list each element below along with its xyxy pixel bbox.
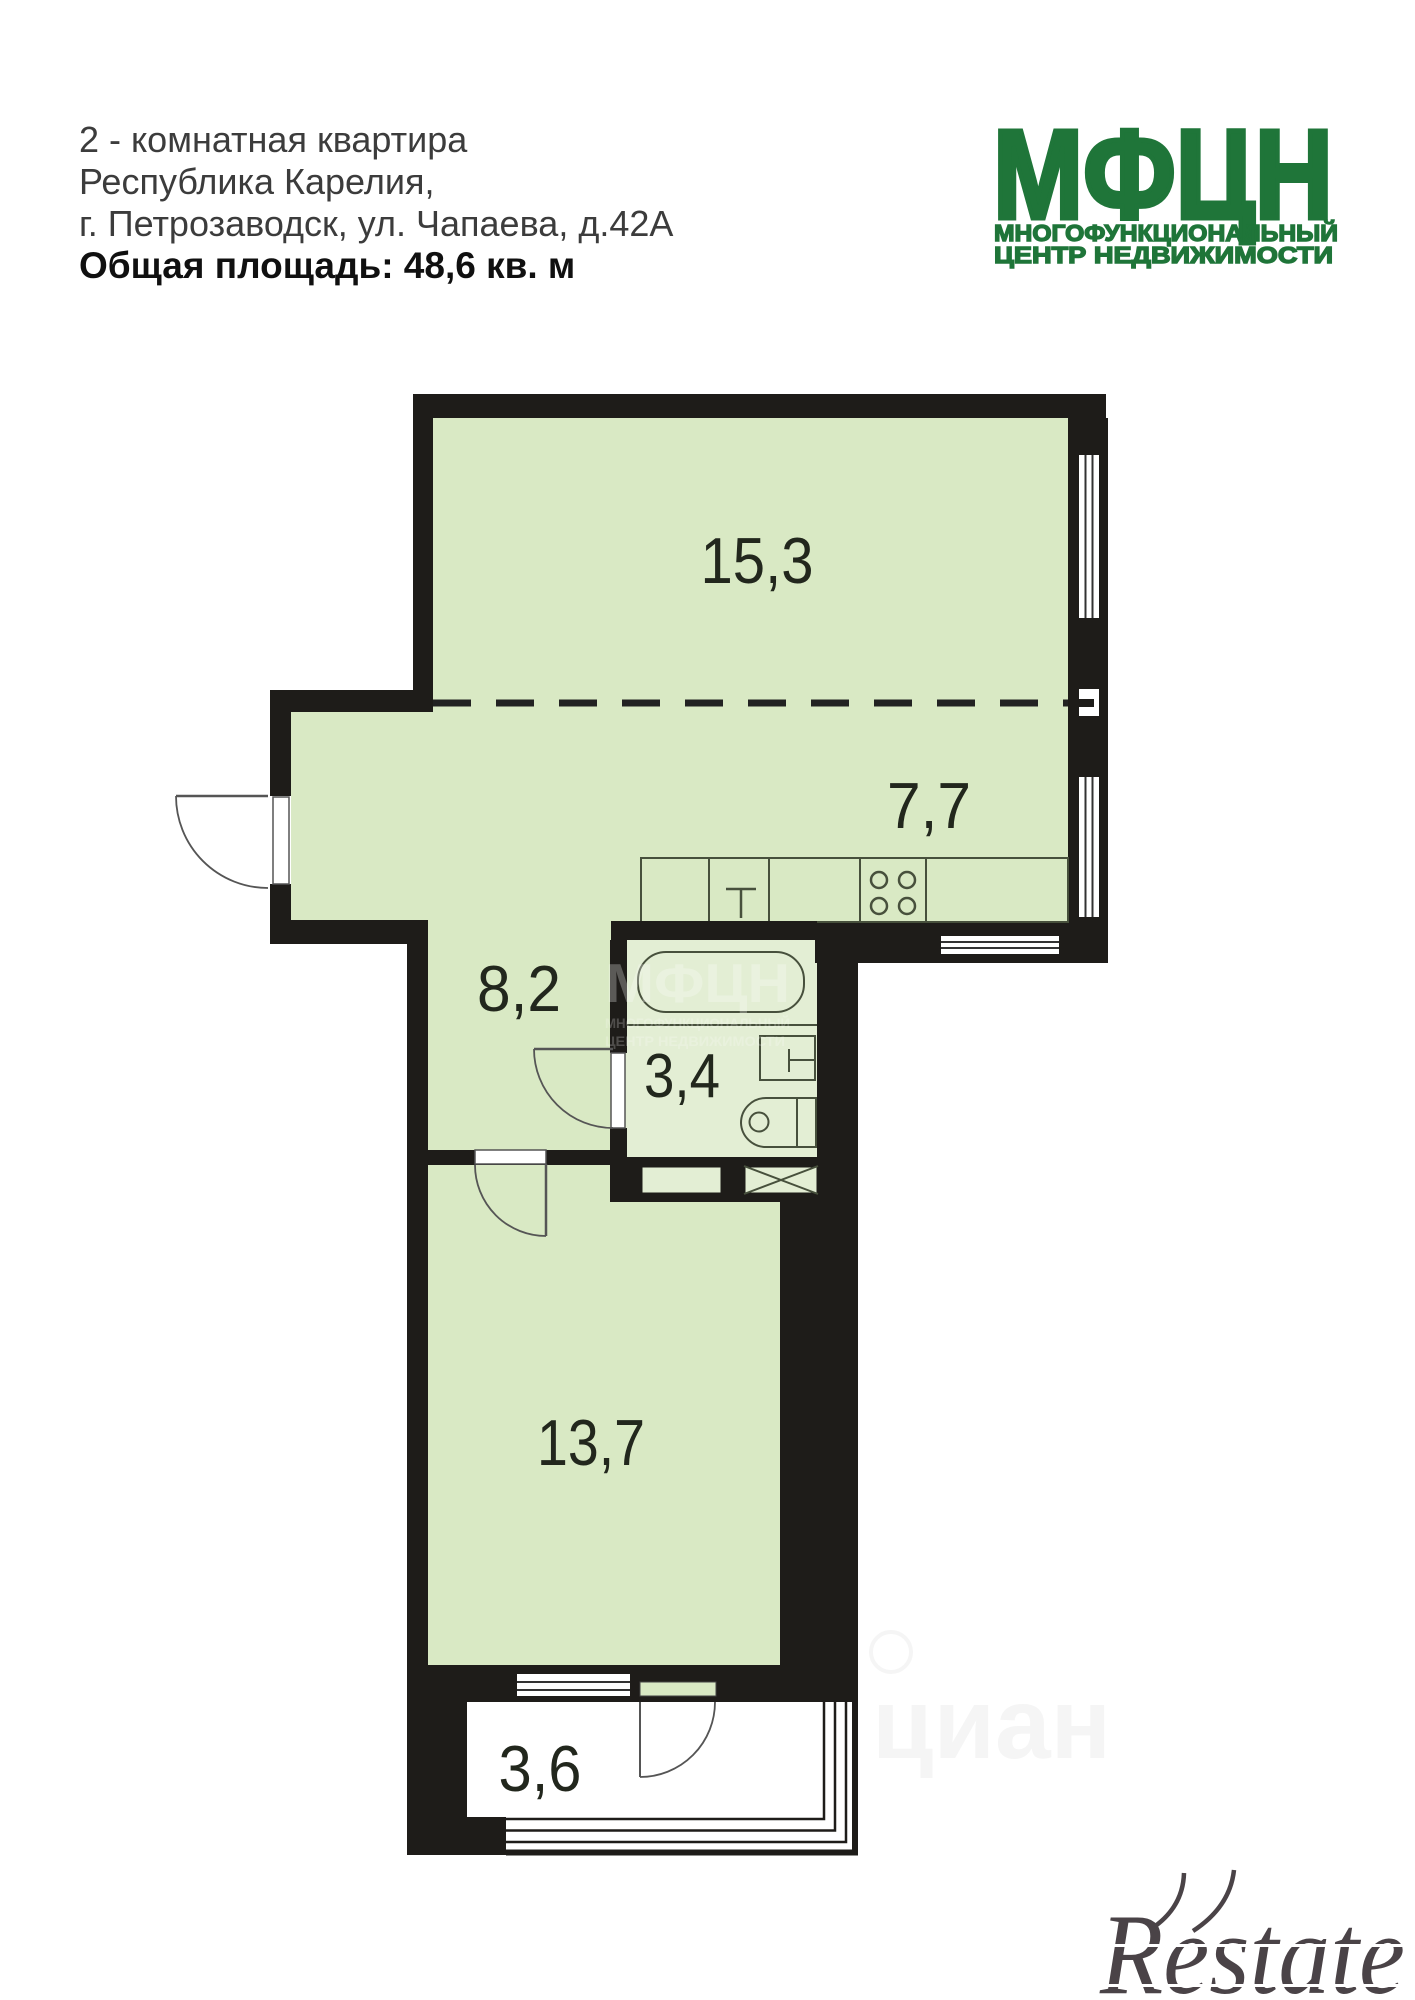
svg-text:циан: циан xyxy=(872,1668,1111,1780)
svg-text:8,2: 8,2 xyxy=(477,952,561,1025)
svg-text:Республика Карелия,: Республика Карелия, xyxy=(79,161,434,202)
svg-text:МФЦН: МФЦН xyxy=(605,952,790,1014)
svg-text:ЦЕНТР НЕДВИЖИМОСТИ: ЦЕНТР НЕДВИЖИМОСТИ xyxy=(994,242,1333,268)
svg-text:2 - комнатная квартира: 2 - комнатная квартира xyxy=(79,119,468,160)
svg-text:Общая площадь: 48,6 кв. м: Общая площадь: 48,6 кв. м xyxy=(79,245,575,286)
svg-text:ЦЕНТР НЕДВИЖИМОСТИ: ЦЕНТР НЕДВИЖИМОСТИ xyxy=(605,1033,785,1049)
svg-text:3,6: 3,6 xyxy=(499,1732,582,1805)
svg-text:МНОГОФУНКЦИОНАЛЬНЫЙ: МНОГОФУНКЦИОНАЛЬНЫЙ xyxy=(605,1014,790,1031)
svg-text:7,7: 7,7 xyxy=(887,769,971,842)
svg-text:15,3: 15,3 xyxy=(701,524,814,597)
svg-text:г. Петрозаводск, ул. Чапаева,: г. Петрозаводск, ул. Чапаева, д.42А xyxy=(79,203,673,244)
svg-text:13,7: 13,7 xyxy=(537,1406,645,1479)
svg-text:3,4: 3,4 xyxy=(644,1042,720,1111)
